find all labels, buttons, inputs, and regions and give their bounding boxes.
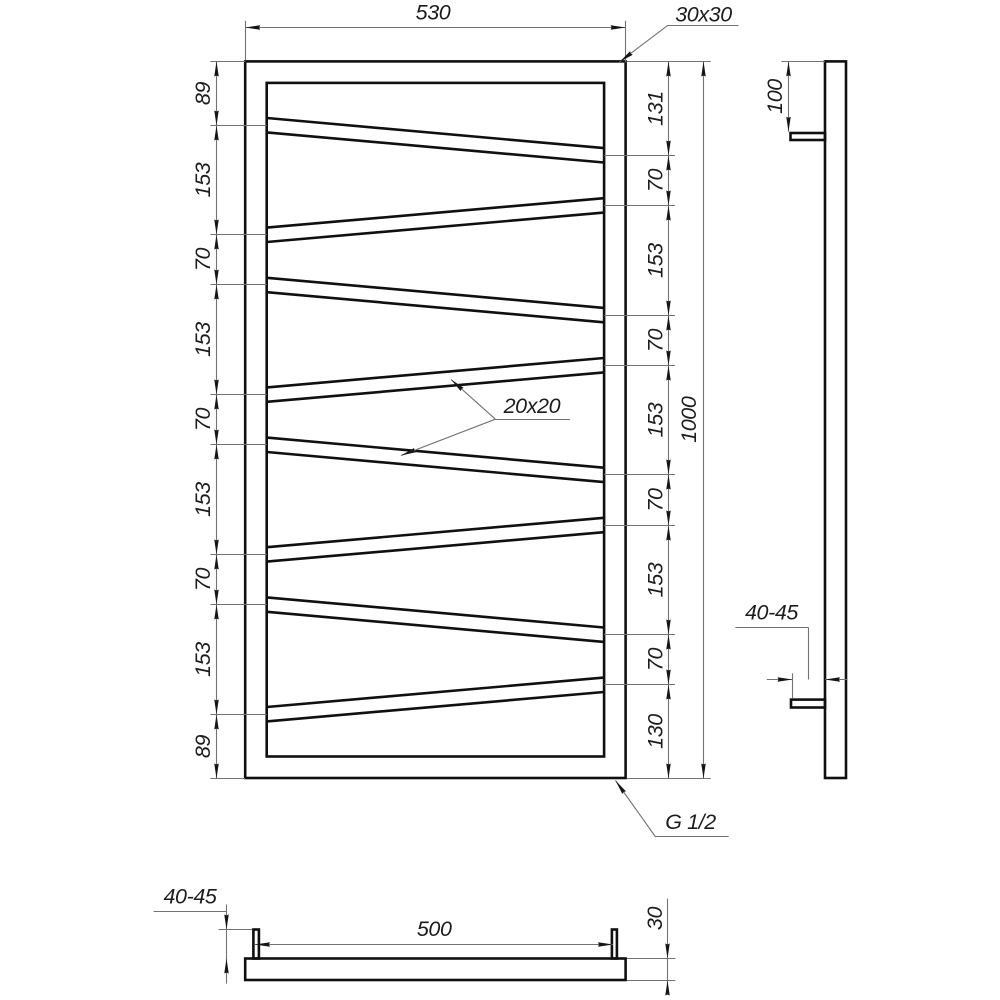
svg-text:131: 131 — [643, 91, 667, 126]
svg-text:130: 130 — [643, 714, 667, 749]
svg-text:153: 153 — [643, 402, 667, 437]
svg-text:153: 153 — [643, 562, 667, 597]
svg-text:100: 100 — [763, 79, 787, 114]
svg-text:70: 70 — [191, 248, 215, 272]
svg-text:40-45: 40-45 — [164, 885, 218, 909]
svg-text:153: 153 — [643, 243, 667, 278]
svg-text:500: 500 — [417, 917, 452, 941]
svg-text:70: 70 — [643, 488, 667, 512]
svg-text:153: 153 — [191, 322, 215, 357]
svg-text:89: 89 — [191, 82, 215, 106]
svg-text:70: 70 — [643, 648, 667, 672]
svg-text:70: 70 — [643, 329, 667, 353]
svg-text:70: 70 — [191, 568, 215, 592]
svg-text:530: 530 — [416, 1, 451, 25]
svg-text:G 1/2: G 1/2 — [665, 810, 716, 834]
svg-text:70: 70 — [191, 408, 215, 432]
svg-text:153: 153 — [191, 482, 215, 517]
svg-text:1000: 1000 — [677, 396, 701, 443]
svg-text:30: 30 — [643, 907, 667, 931]
svg-text:70: 70 — [643, 169, 667, 193]
svg-text:30x30: 30x30 — [675, 3, 732, 27]
svg-text:153: 153 — [191, 162, 215, 197]
svg-text:153: 153 — [191, 642, 215, 677]
svg-text:89: 89 — [191, 735, 215, 759]
svg-text:20x20: 20x20 — [503, 394, 561, 418]
svg-text:40-45: 40-45 — [745, 601, 799, 625]
